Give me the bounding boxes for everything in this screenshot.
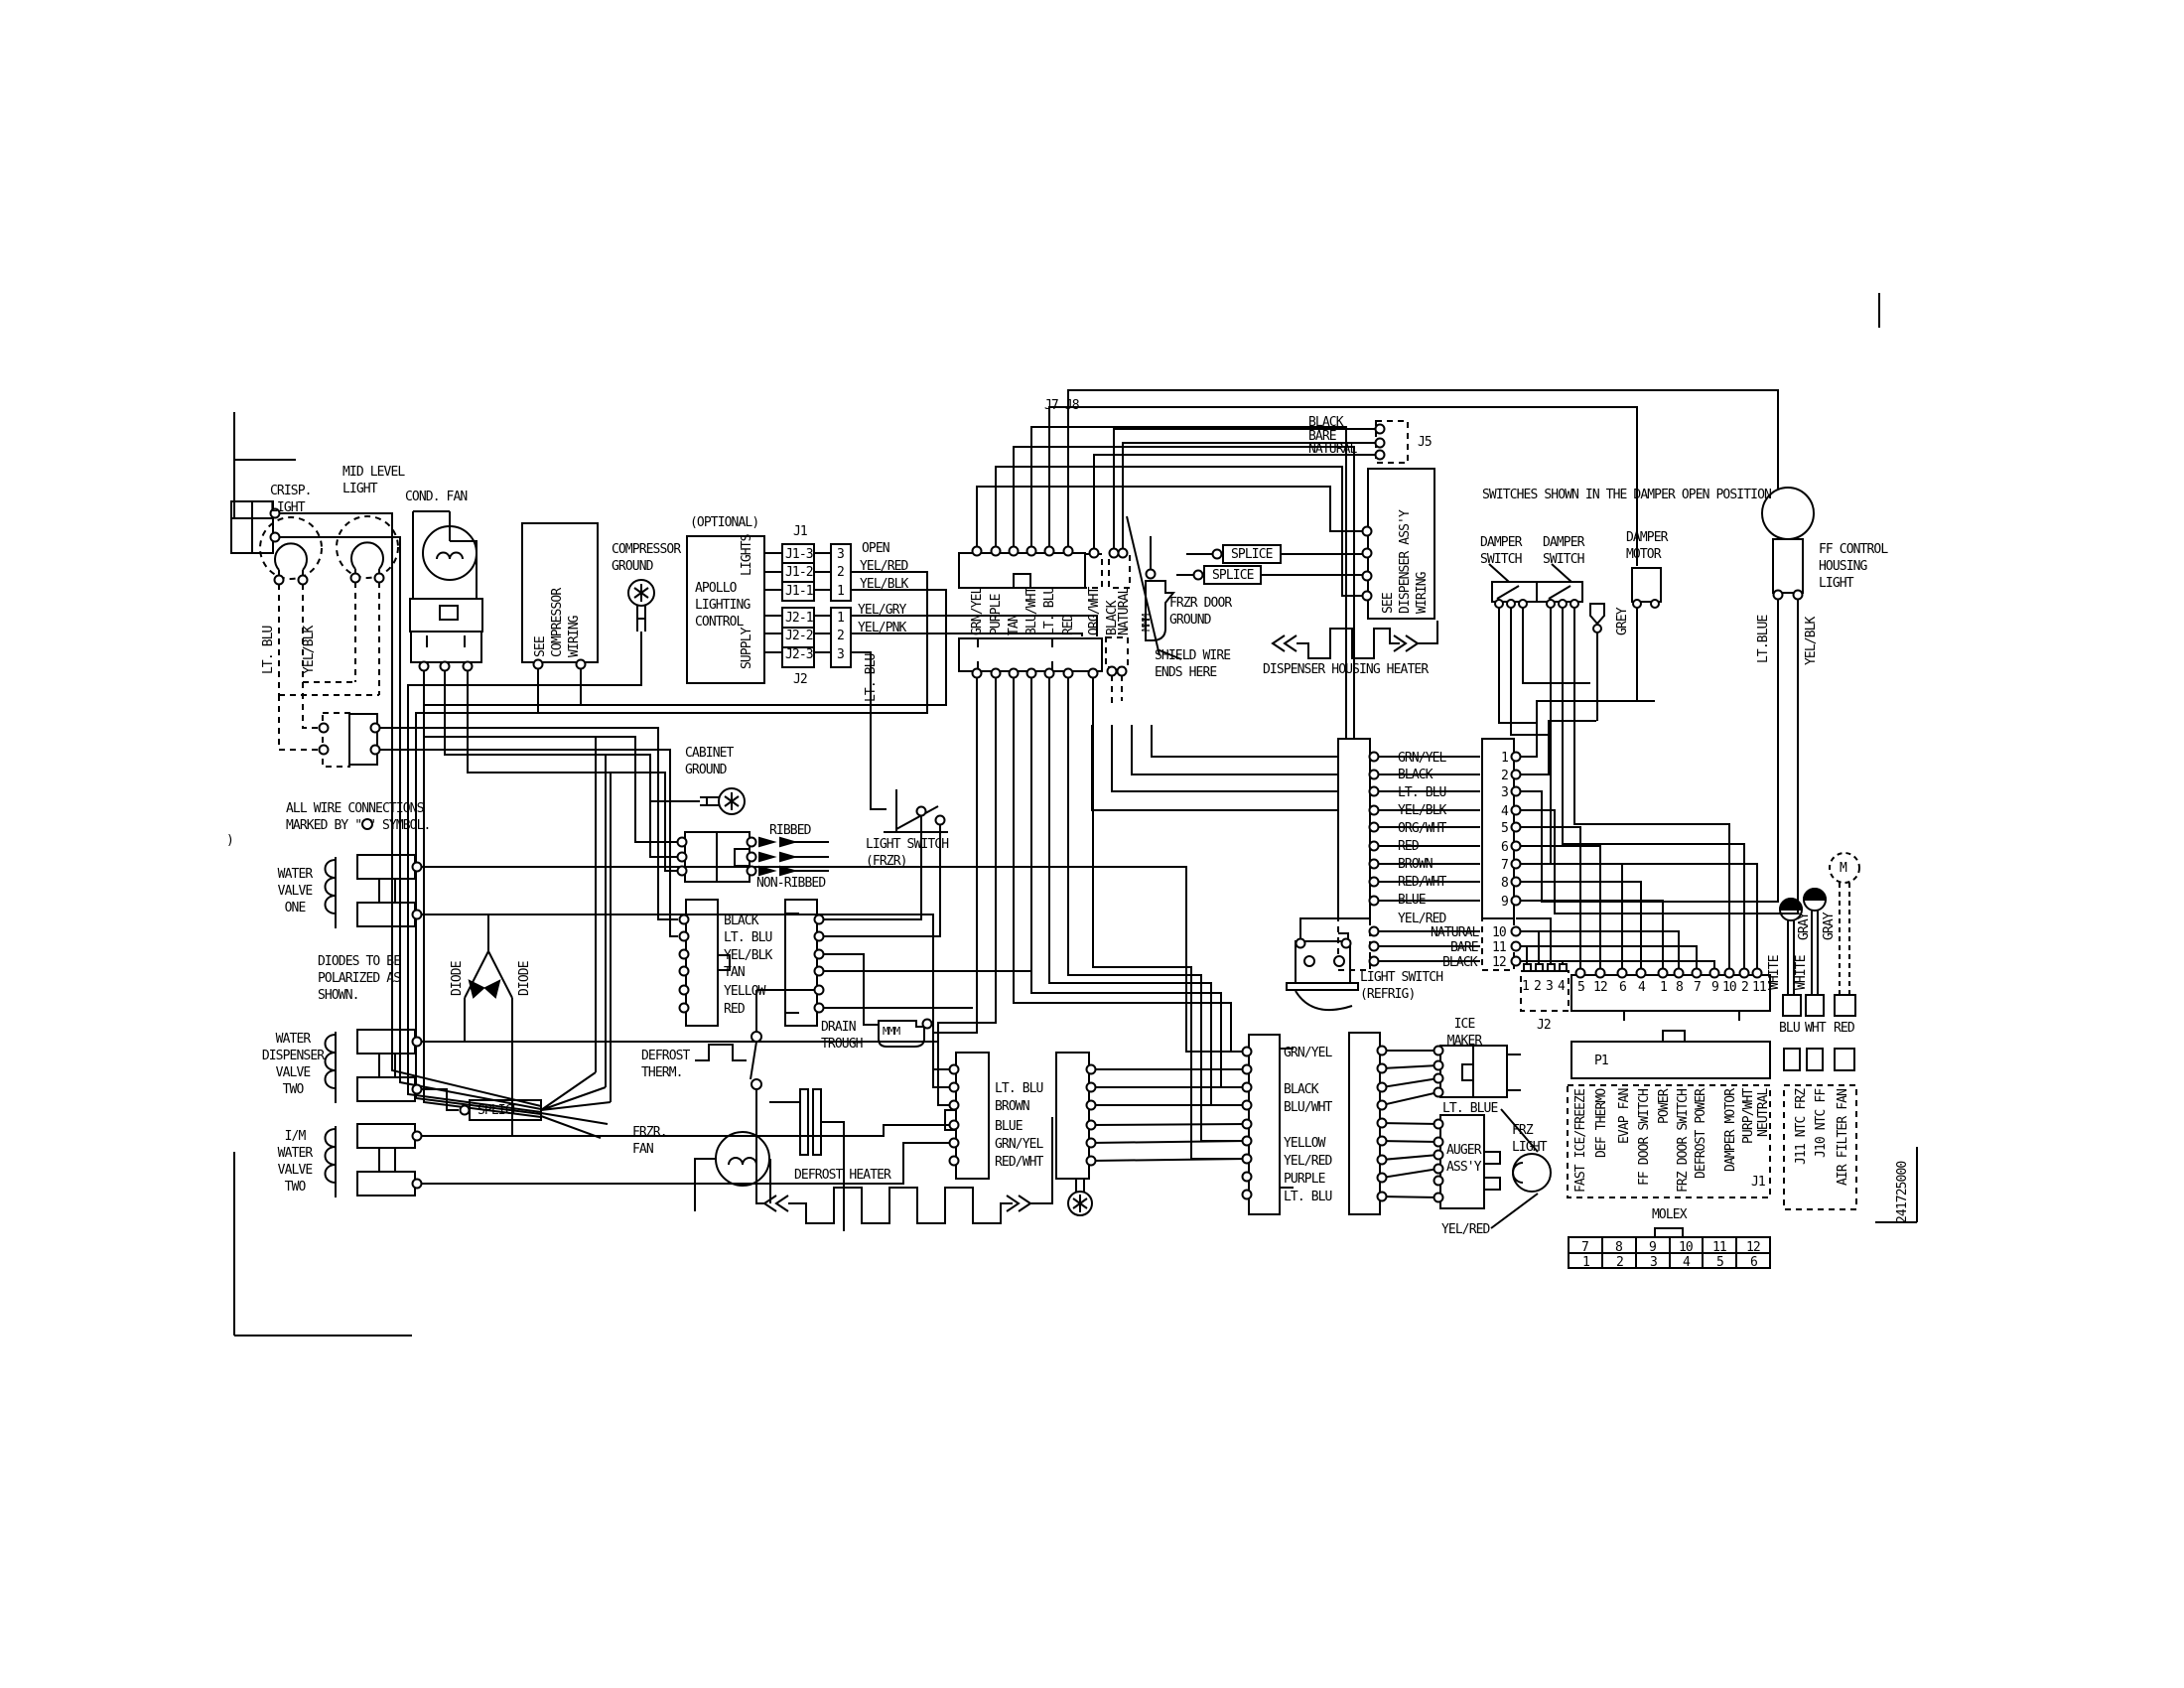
- ml-wire-2: BLUE: [995, 1118, 1023, 1135]
- compressor-wires: [416, 664, 581, 713]
- fz-wire-2: YEL/BLK: [724, 947, 772, 964]
- door-wire-1: PURPLE: [988, 594, 1005, 635]
- optional-label: (OPTIONAL): [690, 514, 758, 531]
- j2c-pin-1: 1: [1522, 978, 1529, 995]
- main-pin-exits: [1516, 606, 1714, 969]
- defrost-heater-label: DEFROST HEATER: [794, 1167, 890, 1184]
- door-wire-0: GRN/YEL: [969, 588, 986, 636]
- water-valve-one-label: WATER VALVE ONE: [260, 866, 330, 916]
- fz-wire-5: RED: [724, 1001, 745, 1018]
- harness-pin-4: 1: [1660, 979, 1667, 996]
- mr-wire-3: YELLOW: [1284, 1135, 1325, 1152]
- defrost-therm-label: DEFROST THERM.: [641, 1048, 690, 1081]
- harness-pin-7: 9: [1711, 979, 1718, 996]
- dispenser-heater-label: DISPENSER HOUSING HEATER: [1263, 661, 1428, 678]
- cond-fan-symbol: [410, 511, 482, 662]
- frzr-door-ground-icon: [1127, 516, 1181, 659]
- harness-pin-2: 6: [1619, 979, 1626, 996]
- compressor-ground-label: COMPRESSOR GROUND: [612, 541, 680, 575]
- gray-label-2: GRAY: [1821, 913, 1838, 940]
- frzr-door-ground-mmm: MMM: [1140, 615, 1155, 632]
- diode-label-1: DIODE: [449, 961, 466, 996]
- light-switch-frzr-label: LIGHT SWITCH (FRZR): [866, 836, 948, 870]
- ff-yel-blk-label: YEL/BLK: [1803, 618, 1820, 666]
- drain-mmm-label: MMM: [883, 1025, 899, 1040]
- j2-pin-3: J2-3: [785, 646, 813, 663]
- splice-left-label: SPLICE: [478, 1102, 519, 1119]
- wiring-diagram: CRISP. LIGHT MID LEVEL LIGHT COND. FAN L…: [0, 0, 2184, 1688]
- mr-wire-5: PURPLE: [1284, 1171, 1325, 1188]
- conn-b-1: 1: [837, 610, 844, 627]
- frzr-door-ground-label: FRZR DOOR GROUND: [1169, 595, 1231, 629]
- wire-label-lt-blu: LT. BLU: [260, 627, 277, 675]
- door-wire-4: LT. BLU: [1041, 588, 1058, 636]
- left-relay-block: [231, 501, 273, 553]
- mc-pin-4: 4: [1501, 803, 1508, 820]
- fz-wire-3: TAN: [724, 964, 745, 981]
- mc-wire-4: ORG/WHT: [1398, 820, 1446, 837]
- j2c-label: J2: [1537, 1017, 1551, 1034]
- yel-red-bottom-label: YEL/RED: [1441, 1221, 1490, 1238]
- p1-label: P1: [1594, 1053, 1608, 1069]
- white-label-1: WHITE: [1766, 955, 1783, 990]
- frz-light-label: FRZ LIGHT: [1512, 1122, 1547, 1156]
- plug-blu-label: BLU: [1779, 1020, 1800, 1037]
- lights-connector: [323, 713, 377, 767]
- mc-pin-9: 9: [1501, 894, 1508, 911]
- mc-wire-5: RED: [1398, 838, 1419, 855]
- auger-label: AUGER ASS'Y: [1446, 1142, 1481, 1176]
- molex-b2: 3: [1650, 1254, 1657, 1271]
- cabinet-ground-label: CABINET GROUND: [685, 745, 734, 778]
- apollo-j2-label: J2: [793, 671, 807, 688]
- ntc-sensors: [1780, 853, 1859, 1070]
- j5-label: J5: [1418, 434, 1432, 451]
- apollo-j1-label: J1: [793, 523, 807, 540]
- mc-wire-0: GRN/YEL: [1398, 750, 1446, 767]
- mc-wire-7: RED/WHT: [1398, 874, 1446, 891]
- mc-pin-1: 1: [1501, 750, 1508, 767]
- mr-wire-6: LT. BLU: [1284, 1189, 1332, 1205]
- white-label-2: WHITE: [1793, 955, 1810, 990]
- grey-label: GREY: [1614, 608, 1631, 635]
- conn-b-2: 2: [837, 628, 844, 644]
- j2c-pin-4: 4: [1558, 978, 1565, 995]
- harness-pin-6: 7: [1694, 979, 1701, 996]
- conn-a-2: 2: [837, 564, 844, 581]
- mc-wire-2: LT. BLU: [1398, 784, 1446, 801]
- conn-a-3: 3: [837, 546, 844, 563]
- crisp-light-symbol: [260, 517, 322, 579]
- light-dashed-wires: [279, 582, 379, 750]
- cond-fan-label: COND. FAN: [405, 489, 467, 505]
- mid-level-light-symbol: [337, 516, 398, 578]
- molex-label: MOLEX: [1652, 1206, 1687, 1223]
- splice2-label: SPLICE: [1212, 567, 1254, 584]
- sensor-sig-1: J10 NTC FF: [1813, 1089, 1830, 1158]
- mc-wire-1: BLACK: [1398, 767, 1433, 783]
- part-number: 241725000: [1894, 1162, 1911, 1223]
- ml-wire-3: GRN/YEL: [995, 1136, 1043, 1153]
- mr-wire-1: BLACK: [1284, 1081, 1318, 1098]
- j1-sig-9: NEUTRAL: [1755, 1089, 1772, 1138]
- j2-pin-2: J2-2: [785, 628, 813, 644]
- harness-pin-0: 5: [1577, 979, 1584, 996]
- dispenser-assy-label: SEE DISPENSER ASS'Y WIRING: [1380, 510, 1431, 614]
- wire-connections-note: ALL WIRE CONNECTIONS MARKED BY " " SYMBO…: [286, 800, 430, 834]
- molex-b4: 5: [1716, 1254, 1723, 1271]
- door-wire-3: BLU/WHT: [1024, 588, 1040, 636]
- fz-wire-1: LT. BLU: [724, 929, 772, 946]
- board-j1-label: J1: [1751, 1174, 1765, 1191]
- conn-b-3: 3: [837, 646, 844, 663]
- door-wire-5: RED: [1060, 615, 1077, 635]
- ff-light-label: FF CONTROL HOUSING LIGHT: [1819, 541, 1887, 592]
- j5-wire-natural: NATURAL: [1308, 441, 1357, 458]
- drain-trough-label: DRAIN TROUGH: [821, 1019, 863, 1053]
- ff-lt-blue-label: LT.BLUE: [1755, 616, 1772, 664]
- im-water-valve-label: I/M WATER VALVE TWO: [260, 1128, 330, 1196]
- j1-pin-2: J1-2: [785, 564, 813, 581]
- apollo-label: APOLLO LIGHTING CONTROL: [695, 580, 750, 631]
- j1-sig-3: FF DOOR SWITCH: [1636, 1089, 1653, 1186]
- diode-label-2: DIODE: [516, 961, 533, 996]
- defrost-therm-symbol: [695, 990, 764, 1203]
- yel-pnk-label: YEL/PNK: [858, 620, 906, 636]
- molex-b3: 4: [1683, 1254, 1690, 1271]
- door-wire-6: ORG/WHT: [1086, 588, 1103, 636]
- j1-pin-3: J1-3: [785, 546, 813, 563]
- mr-wire-0: GRN/YEL: [1284, 1045, 1332, 1061]
- sensor-sig-2: AIR FILTER FAN: [1835, 1089, 1851, 1186]
- harness-pin-5: 8: [1676, 979, 1683, 996]
- splice1-label: SPLICE: [1231, 546, 1273, 563]
- molex-b1: 2: [1616, 1254, 1623, 1271]
- plug-wht-label: WHT: [1805, 1020, 1826, 1037]
- j1-sig-2: EVAP FAN: [1616, 1089, 1633, 1144]
- door-wire-2: TAN: [1006, 615, 1023, 635]
- j1-sig-5: FRZ DOOR SWITCH: [1675, 1089, 1692, 1193]
- frzr-fan-label: FRZR. FAN: [632, 1124, 667, 1158]
- mc-pin-5: 5: [1501, 820, 1508, 837]
- yel-blk-label: YEL/BLK: [860, 576, 908, 593]
- harness-pin-1: 12: [1593, 979, 1607, 996]
- molex-b5: 6: [1750, 1254, 1757, 1271]
- damper-wiring: [1499, 608, 1757, 969]
- crisp-light-label: CRISP. LIGHT: [270, 483, 312, 516]
- j2-pin-1: J2-1: [785, 610, 813, 627]
- non-ribbed-label: NON-RIBBED: [756, 875, 825, 892]
- supply-label: SUPPLY: [739, 628, 755, 669]
- lt-blue-label: LT. BLUE: [1442, 1100, 1497, 1117]
- molex-b0: 1: [1582, 1254, 1589, 1271]
- fz-wire-0: BLACK: [724, 913, 758, 929]
- j1-sig-0: FAST ICE/FREEZE: [1572, 1089, 1589, 1193]
- lights-label: LIGHTS: [739, 534, 755, 576]
- mc-wire-6: BROWN: [1398, 856, 1433, 873]
- j2c-pin-3: 3: [1546, 978, 1553, 995]
- compressor-ground-icon: [628, 580, 654, 632]
- fz-wire-4: YELLOW: [724, 983, 765, 1000]
- cond-fan-wires: [424, 666, 678, 871]
- j1-pin-1: J1-1: [785, 583, 813, 600]
- shield-wire-label: SHIELD WIRE ENDS HERE: [1155, 647, 1230, 681]
- splice-left: [470, 737, 611, 1138]
- open-label: OPEN: [862, 540, 889, 557]
- sensor-sig-0: J11 NTC FRZ: [1793, 1089, 1810, 1165]
- damper-switch2-label: DAMPER SWITCH: [1543, 534, 1584, 568]
- mc-pin-6: 6: [1501, 839, 1508, 856]
- yel-gry-label: YEL/GRY: [858, 602, 906, 619]
- light-switch-frzr-symbol: [884, 789, 948, 832]
- diodes-note: DIODES TO BE POLARIZED AS SHOWN.: [318, 953, 400, 1004]
- damper-switch1-label: DAMPER SWITCH: [1480, 534, 1522, 568]
- yel-red-label: YEL/RED: [860, 558, 908, 575]
- harness-pin-9: 2: [1741, 979, 1748, 996]
- mc-wire-8: BLUE: [1398, 892, 1426, 909]
- stray-mark: ): [226, 832, 233, 849]
- ribbed-label: RIBBED: [769, 822, 811, 839]
- j1-sig-1: DEF THERMO: [1593, 1089, 1610, 1158]
- mc-pin-8: 8: [1501, 875, 1508, 892]
- gray-label-1: GRAY: [1796, 913, 1813, 940]
- ml-wire-4: RED/WHT: [995, 1154, 1043, 1171]
- frzr-fan-symbol: [695, 1089, 844, 1231]
- damper-motor-label: DAMPER MOTOR: [1626, 529, 1668, 563]
- ice-maker-label: ICE MAKER: [1434, 1016, 1494, 1050]
- mr-wire-2: BLU/WHT: [1284, 1099, 1332, 1116]
- mc-pin-3: 3: [1501, 784, 1508, 801]
- light-switch-refrig-label: LIGHT SWITCH (REFRIG): [1360, 969, 1442, 1003]
- mc-black: BLACK: [1442, 954, 1477, 971]
- j1-sig-4: POWER: [1656, 1089, 1673, 1124]
- conn-a-1: 1: [837, 583, 844, 600]
- wiring-canvas: [0, 0, 2184, 1688]
- door-wire-8: NATURAL: [1116, 588, 1133, 636]
- mr-wire-4: YEL/RED: [1284, 1153, 1332, 1170]
- lt-blu-b-label: LT. BLU: [863, 654, 880, 703]
- door-connector-label: J7 J8: [1044, 397, 1079, 414]
- motor-m-label: M: [1840, 860, 1846, 877]
- ml-wire-1: BROWN: [995, 1098, 1029, 1115]
- harness-pin-3: 4: [1638, 979, 1645, 996]
- mc-pin-7: 7: [1501, 857, 1508, 874]
- water-dispenser-valve-label: WATER DISPENSER VALVE TWO: [243, 1031, 342, 1099]
- mc-pin-2: 2: [1501, 768, 1508, 784]
- ml-wire-0: LT. BLU: [995, 1080, 1043, 1097]
- mc-wire-3: YEL/BLK: [1398, 802, 1446, 819]
- j1-sig-6: DEFROST POWER: [1693, 1089, 1709, 1179]
- mc-pin-12: 12: [1492, 954, 1506, 971]
- harness-pin-10: 11: [1752, 979, 1766, 996]
- water-valve-one: [326, 855, 416, 928]
- plug-red-label: RED: [1834, 1020, 1854, 1037]
- wire-label-yel-blk: YEL/BLK: [301, 627, 318, 675]
- damper-note: SWITCHES SHOWN IN THE DAMPER OPEN POSITI…: [1482, 487, 1771, 503]
- im-water-valve-two: [326, 1124, 416, 1197]
- see-compressor-wiring-label: SEE COMPRESSOR WIRING: [532, 589, 583, 657]
- j2c-pin-2: 2: [1534, 978, 1541, 995]
- harness-pin-8: 10: [1722, 979, 1736, 996]
- mid-level-light-label: MID LEVEL LIGHT: [342, 464, 404, 497]
- light-switch-refrig-symbol: [1287, 918, 1358, 1010]
- j1-sig-7: DAMPER MOTOR: [1722, 1089, 1739, 1172]
